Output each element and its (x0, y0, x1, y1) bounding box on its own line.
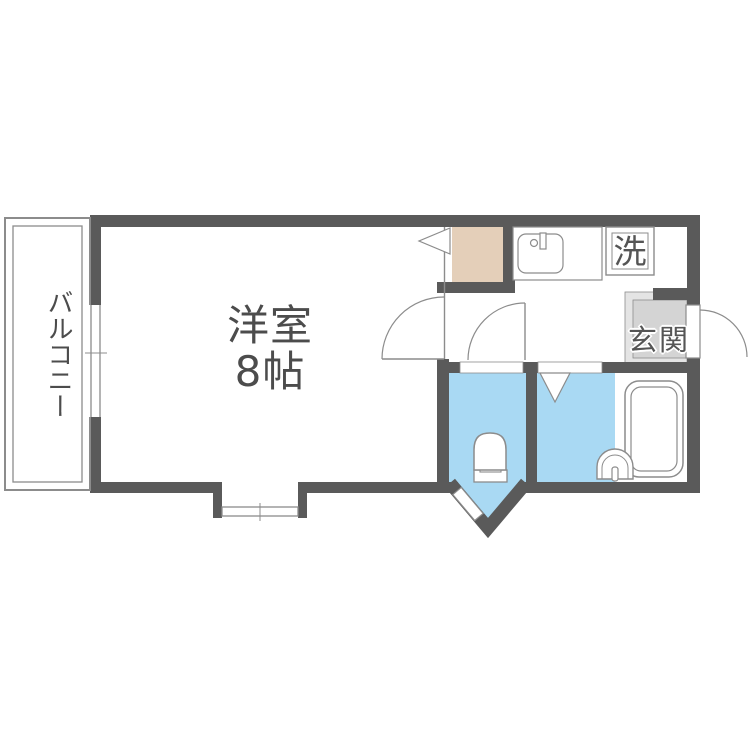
door-swing-arc (382, 297, 444, 359)
main-room-label: 洋室 8帖 (170, 303, 370, 395)
kitchen-counter (513, 227, 602, 280)
bay-window (222, 482, 298, 521)
faucet-icon (531, 240, 538, 247)
balcony-label: バルコニー (44, 289, 72, 419)
floor-plan: 洋室 8帖 バルコニー 玄関 洗 (0, 0, 750, 750)
closet-space (452, 227, 503, 282)
main-room-name: 洋室 (170, 303, 370, 349)
door-swing-arc (468, 303, 525, 360)
washbasin-icon (597, 449, 633, 481)
door-swing-arc (700, 310, 747, 357)
closet-door-icon (419, 228, 450, 254)
entrance-label: 玄関 (622, 317, 696, 359)
toilet-door (460, 303, 525, 373)
toilet-icon (474, 433, 507, 482)
balcony-window (85, 305, 107, 417)
bathtub-icon (625, 381, 683, 477)
main-room-size: 8帖 (170, 349, 370, 395)
laundry-label: 洗 (606, 235, 654, 269)
floor-plan-drawing (0, 0, 750, 750)
